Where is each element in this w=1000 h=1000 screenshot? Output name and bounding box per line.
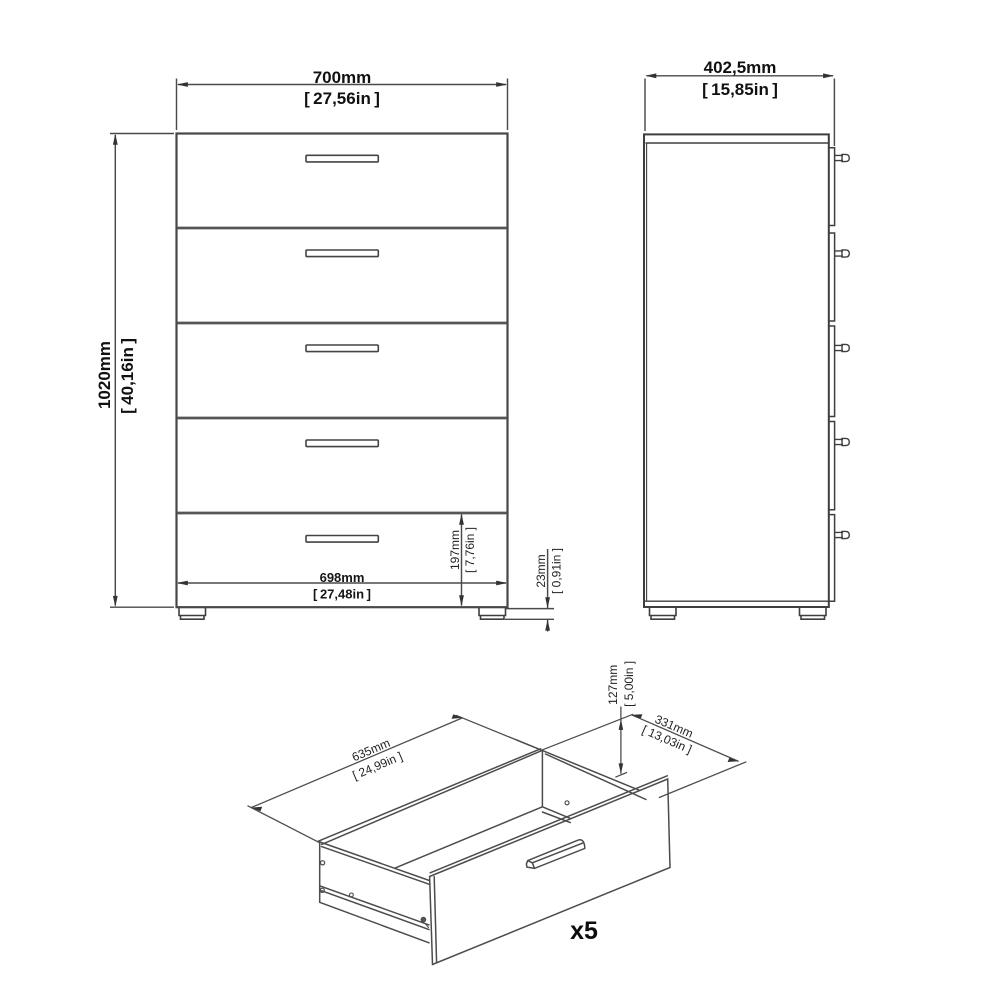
svg-text:402,5mm: 402,5mm <box>704 58 777 77</box>
svg-text:[ 7,76in ]: [ 7,76in ] <box>463 527 477 573</box>
svg-text:[ 27,48in ]: [ 27,48in ] <box>313 587 371 602</box>
svg-text:23mm: 23mm <box>534 554 548 587</box>
svg-text:[ 40,16in ]: [ 40,16in ] <box>118 338 137 414</box>
svg-text:127mm: 127mm <box>606 665 620 705</box>
svg-text:197mm: 197mm <box>448 530 462 570</box>
svg-text:1020mm: 1020mm <box>95 341 114 409</box>
svg-text:[ 0,91in ]: [ 0,91in ] <box>550 548 564 594</box>
svg-text:700mm: 700mm <box>313 68 372 87</box>
svg-text:x5: x5 <box>570 917 598 945</box>
svg-text:698mm: 698mm <box>320 570 365 585</box>
svg-text:[ 15,85in ]: [ 15,85in ] <box>702 80 778 99</box>
svg-text:[ 27,56in ]: [ 27,56in ] <box>304 89 380 108</box>
svg-text:[ 5,00in ]: [ 5,00in ] <box>622 661 636 707</box>
